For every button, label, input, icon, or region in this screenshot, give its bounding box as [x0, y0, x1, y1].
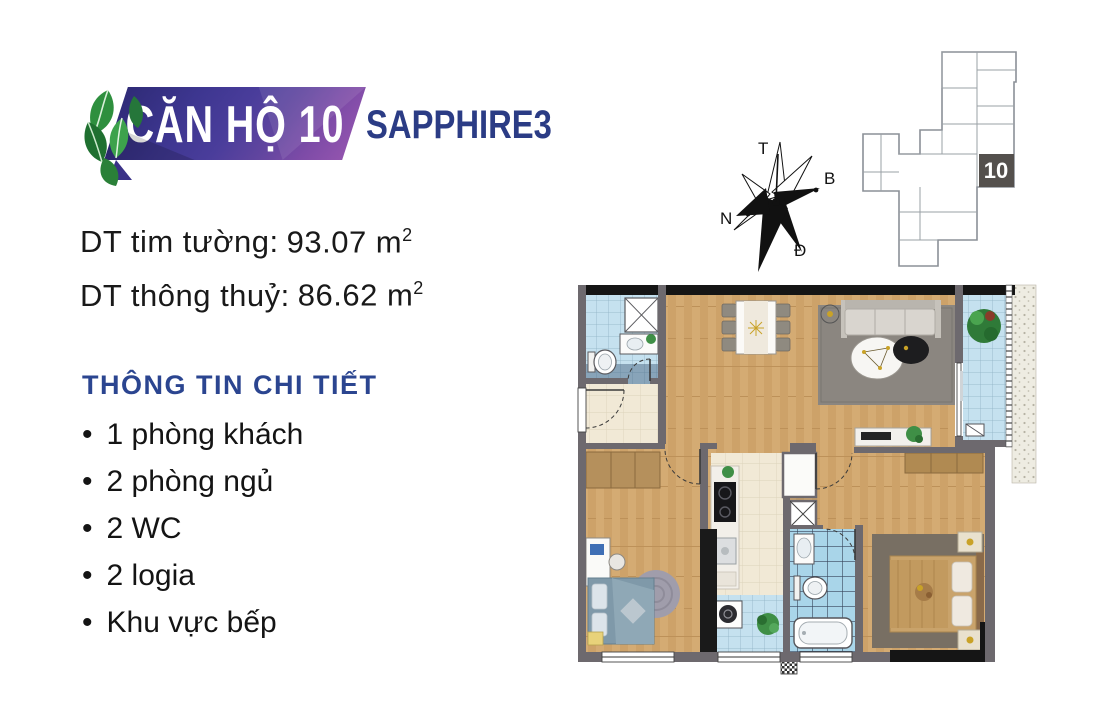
- compass-north-label: B: [824, 169, 835, 188]
- exterior-ledge: [1012, 285, 1036, 483]
- leaf-decoration-icon: [78, 84, 182, 193]
- bullet-icon: •: [82, 608, 93, 638]
- details-heading: THÔNG TIN CHI TIẾT: [82, 370, 377, 401]
- keyplan-unit-number: 10: [984, 158, 1008, 183]
- compass-east-label: Đ: [794, 241, 806, 260]
- building-key-plan: 10: [858, 42, 1094, 287]
- compass-rose: T B N Đ: [702, 132, 850, 285]
- bullet-icon: •: [82, 561, 93, 591]
- detail-list-item: • 2 WC: [82, 512, 303, 559]
- compass-south-label: N: [720, 209, 732, 228]
- compass-west-label: T: [758, 139, 768, 158]
- project-name: SAPPHIRE3: [366, 99, 552, 151]
- bullet-icon: •: [82, 420, 93, 450]
- entry-hall-floor: [586, 384, 658, 446]
- detail-list-item: • 2 logia: [82, 559, 303, 606]
- dining-set: [722, 301, 790, 354]
- apartment-floor-plan: [572, 276, 1052, 693]
- bullet-icon: •: [82, 467, 93, 497]
- detail-list-item: • Khu vực bếp: [82, 606, 303, 653]
- detail-list-item: • 1 phòng khách: [82, 418, 303, 465]
- area-line-thong-thuy: DT thông thuỷ:86.62 m2: [80, 265, 424, 318]
- area-stats: DT tim tường:93.07 m2 DT thông thuỷ:86.6…: [80, 212, 424, 319]
- details-list: • 1 phòng khách • 2 phòng ngủ • 2 WC • 2…: [82, 418, 303, 653]
- area-line-tim-tuong: DT tim tường:93.07 m2: [80, 212, 424, 265]
- bullet-icon: •: [82, 514, 93, 544]
- detail-list-item: • 2 phòng ngủ: [82, 465, 303, 512]
